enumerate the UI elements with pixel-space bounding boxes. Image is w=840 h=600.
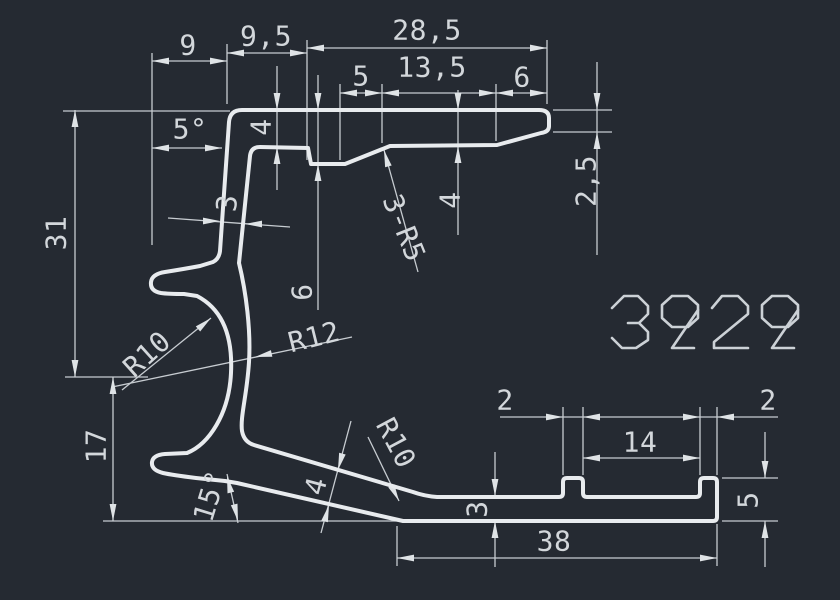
arrowhead-icon: [397, 555, 414, 562]
arrowhead-icon: [254, 350, 272, 360]
dim-width-9: 9: [179, 29, 196, 62]
arrowhead-icon: [583, 455, 600, 462]
part-number-digit: [672, 310, 698, 348]
dim-lip-5: 5: [732, 491, 765, 508]
arrowhead-icon: [594, 132, 601, 149]
arrowhead-icon: [315, 164, 322, 181]
arrowhead-icon: [455, 93, 462, 110]
part-number-digit: [762, 296, 798, 327]
dim-base-38: 38: [537, 525, 572, 558]
dim-gap-14: 14: [623, 426, 658, 459]
dim-thick-4-top: 4: [245, 118, 278, 135]
arrowhead-icon: [152, 145, 169, 152]
arrowhead-icon: [530, 45, 547, 52]
dim-tab-2-left: 2: [496, 384, 513, 417]
arrowhead-icon: [381, 149, 392, 167]
dim-angle-5deg: 5°: [173, 113, 208, 146]
arrowhead-icon: [274, 93, 281, 110]
arrowhead-icon: [492, 479, 499, 496]
arrowhead-icon: [72, 360, 79, 377]
dim-tab-2-right: 2: [759, 384, 776, 417]
dim-thick-4-arm: 4: [298, 473, 334, 498]
arrowhead-icon: [683, 414, 700, 421]
arrowhead-icon: [203, 218, 220, 225]
arrowhead-icon: [683, 455, 700, 462]
arrowhead-icon: [762, 521, 769, 538]
arrowhead-icon: [72, 110, 79, 127]
arrowhead-icon: [530, 90, 547, 97]
dimension-line: [168, 218, 290, 227]
arrowhead-icon: [205, 145, 222, 152]
profile-outline: [151, 110, 717, 521]
dim-height-17: 17: [80, 429, 113, 464]
dim-radius-R10-arm: R10: [369, 412, 423, 473]
arrowhead-icon: [210, 58, 227, 65]
part-number-digit: [712, 296, 748, 348]
dim-width-28-5: 28,5: [392, 14, 461, 47]
dim-radius-R12: R12: [285, 315, 344, 360]
arrowhead-icon: [290, 50, 307, 57]
part-number-digit: [772, 310, 798, 348]
arrowhead-icon: [717, 414, 734, 421]
arrowhead-icon: [110, 504, 117, 521]
arrowhead-icon: [274, 147, 281, 164]
arrowhead-icon: [321, 504, 332, 522]
arrowhead-icon: [110, 377, 117, 394]
extension-and-dimension-lines: [63, 40, 778, 567]
dim-width-9-5: 9,5: [240, 20, 292, 53]
part-number-digit: [662, 296, 698, 327]
dim-thick-4-right: 4: [434, 191, 467, 208]
arrowhead-icon: [231, 504, 241, 522]
dim-notch-13-5: 13,5: [397, 51, 466, 84]
arrowhead-icon: [546, 414, 563, 421]
cad-canvas: 9 9,5 28,5 5 13,5 6 5° 4 6 3 3-R5 4 2,5 …: [0, 0, 840, 600]
arrowhead-icon: [492, 521, 499, 538]
arrowhead-icon: [315, 93, 322, 110]
dim-tip-6: 6: [513, 61, 530, 94]
dim-height-31: 31: [40, 216, 73, 251]
arrowhead-icon: [496, 90, 513, 97]
dim-depth-6: 6: [286, 283, 319, 300]
arrowhead-icon: [762, 461, 769, 478]
dim-fillets-3-R5: 3-R5: [376, 190, 433, 267]
arrowhead-icon: [700, 555, 717, 562]
dim-tip-2-5: 2,5: [570, 155, 603, 207]
arrowhead-icon: [583, 414, 600, 421]
part-number-label: [612, 296, 798, 348]
arrowhead-icon: [382, 90, 399, 97]
cad-drawing: 9 9,5 28,5 5 13,5 6 5° 4 6 3 3-R5 4 2,5 …: [0, 0, 840, 600]
arrowhead-icon: [479, 90, 496, 97]
arrowhead-icon: [307, 45, 324, 52]
arrowhead-icon: [455, 146, 462, 163]
dim-angle-15deg: 15°: [187, 466, 234, 525]
dim-base-3: 3: [461, 500, 494, 517]
arrowhead-icon: [152, 58, 169, 65]
arrowhead-icon: [245, 221, 262, 228]
arrowhead-icon: [594, 93, 601, 110]
dim-wall-3: 3: [210, 193, 244, 213]
dim-notch-5: 5: [352, 60, 369, 93]
